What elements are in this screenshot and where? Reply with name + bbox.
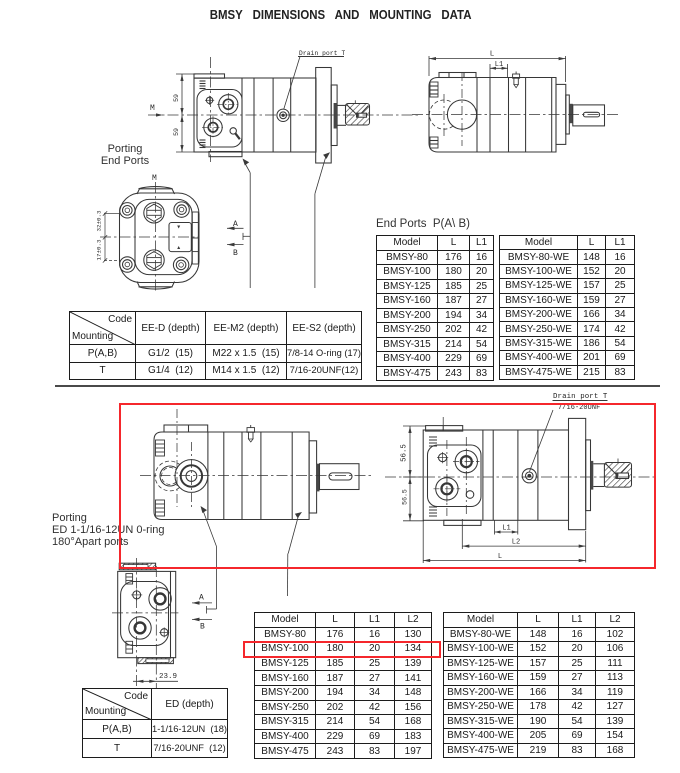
svg-text:L1: L1	[495, 61, 503, 69]
svg-text:59: 59	[173, 128, 180, 136]
svg-text:L: L	[490, 51, 495, 59]
svg-text:M: M	[152, 174, 157, 183]
svg-text:Drain port T: Drain port T	[553, 393, 608, 401]
svg-text:59: 59	[173, 94, 180, 102]
svg-text:17±0.3: 17±0.3	[96, 239, 103, 260]
svg-text:Drain port T: Drain port T	[299, 50, 345, 57]
svg-text:23.9: 23.9	[159, 673, 177, 681]
svg-text:B: B	[200, 623, 205, 632]
svg-text:B: B	[233, 249, 238, 258]
svg-text:A: A	[199, 594, 204, 603]
svg-text:M: M	[150, 104, 155, 113]
svg-text:32±0.3: 32±0.3	[96, 210, 103, 231]
